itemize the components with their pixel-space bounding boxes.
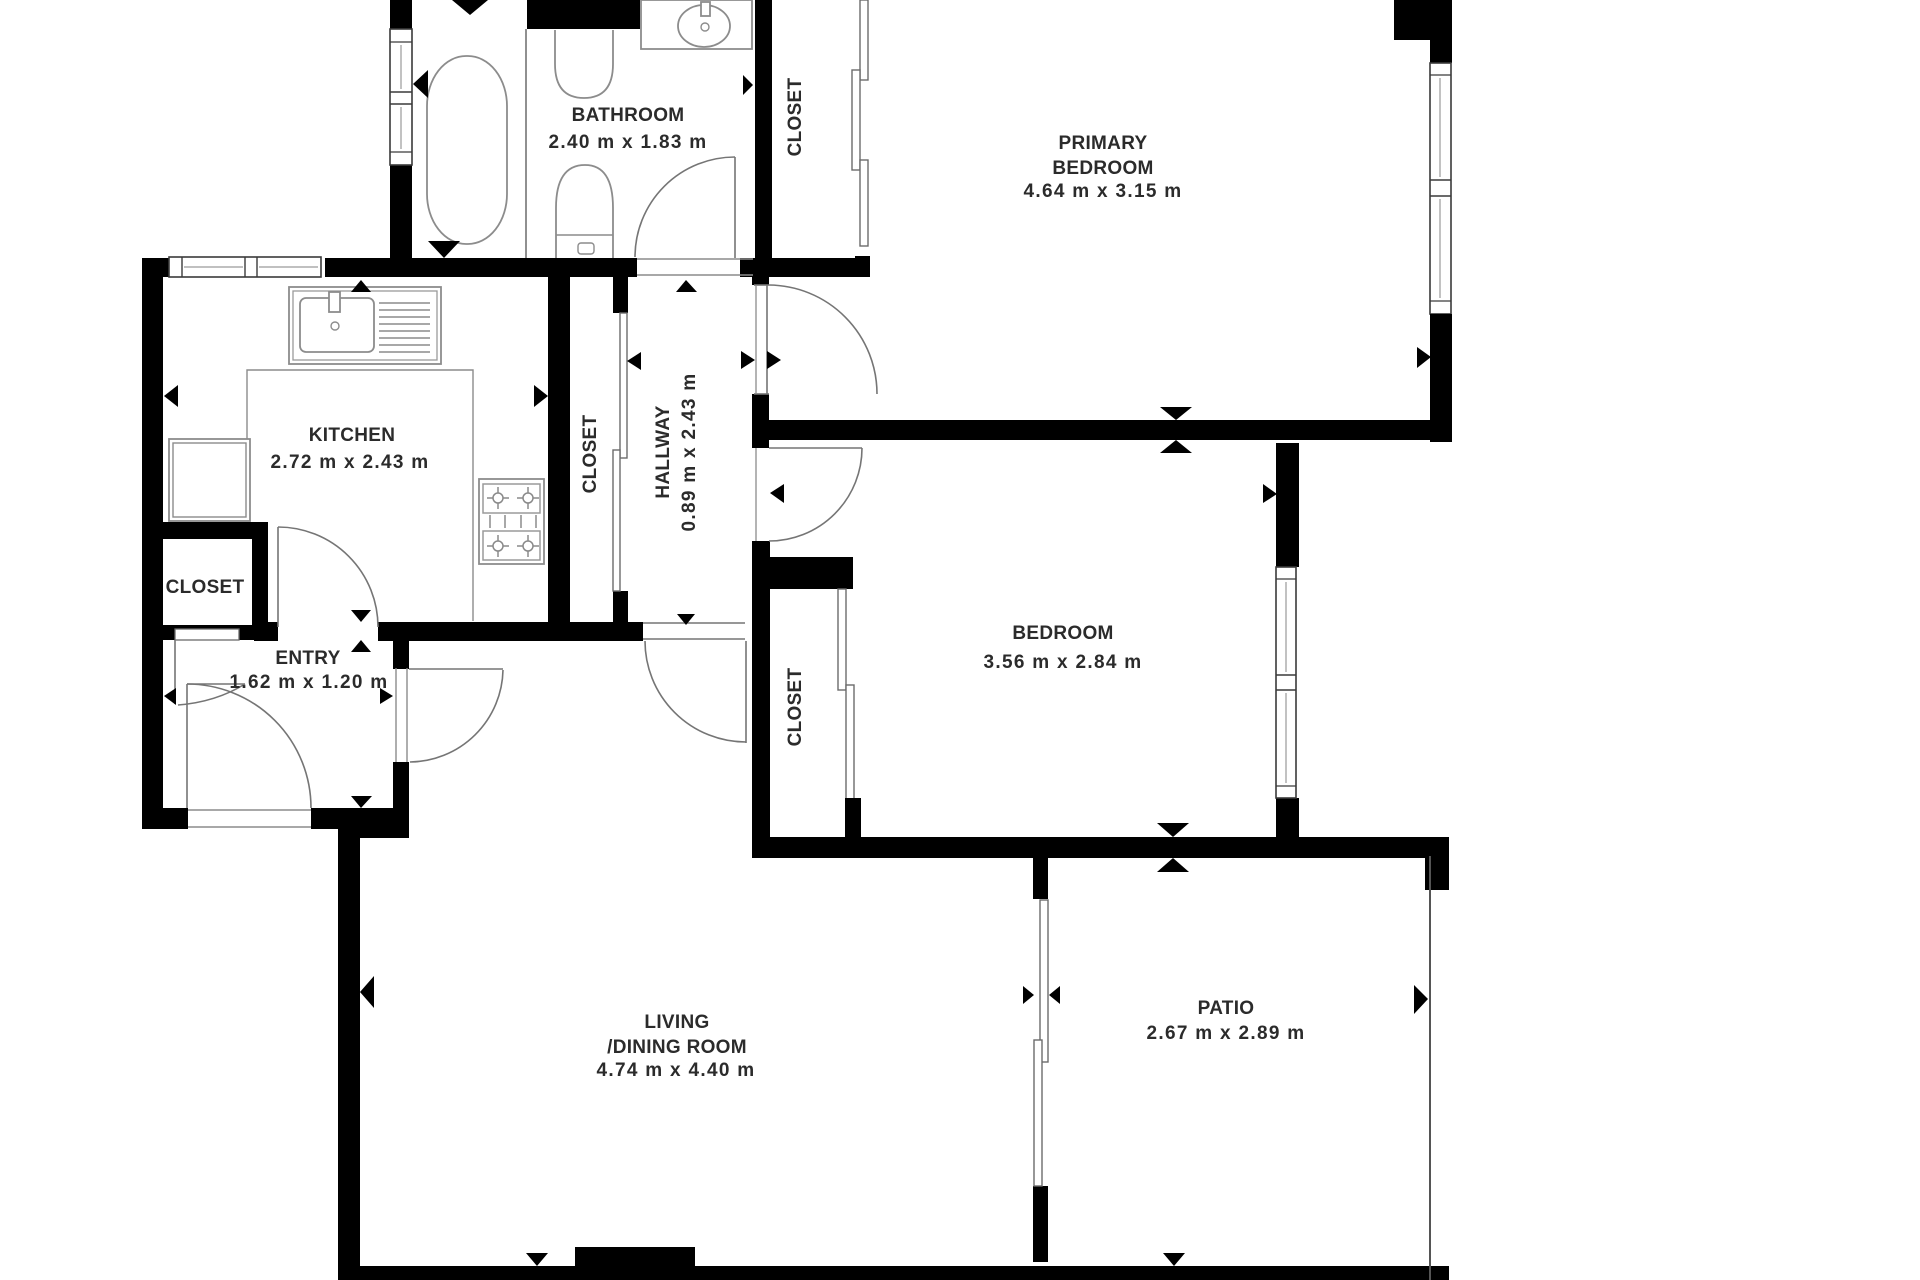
svg-text:0.89 m x 2.43 m: 0.89 m x 2.43 m [679, 373, 700, 532]
svg-text:PRIMARY: PRIMARY [1058, 133, 1147, 154]
svg-text:2.40 m x 1.83 m: 2.40 m x 1.83 m [549, 132, 708, 153]
svg-text:CLOSET: CLOSET [785, 667, 806, 746]
svg-text:LIVING: LIVING [644, 1012, 709, 1033]
svg-text:CLOSET: CLOSET [580, 414, 601, 493]
svg-text:ENTRY: ENTRY [275, 648, 340, 669]
svg-text:PATIO: PATIO [1198, 998, 1255, 1019]
svg-text:HALLWAY: HALLWAY [653, 405, 674, 498]
svg-text:BEDROOM: BEDROOM [1052, 158, 1153, 179]
svg-text:CLOSET: CLOSET [166, 577, 245, 598]
svg-text:CLOSET: CLOSET [785, 77, 806, 156]
svg-text:BEDROOM: BEDROOM [1012, 623, 1113, 644]
svg-text:KITCHEN: KITCHEN [309, 425, 396, 446]
svg-text:2.67 m x 2.89 m: 2.67 m x 2.89 m [1147, 1023, 1306, 1044]
svg-text:1.62 m x 1.20 m: 1.62 m x 1.20 m [230, 672, 389, 693]
svg-text:BATHROOM: BATHROOM [572, 105, 685, 126]
svg-text:3.56 m x 2.84 m: 3.56 m x 2.84 m [984, 652, 1143, 673]
svg-text:2.72 m x 2.43 m: 2.72 m x 2.43 m [271, 452, 430, 473]
svg-text:4.74 m x 4.40 m: 4.74 m x 4.40 m [597, 1060, 756, 1081]
svg-text:/DINING ROOM: /DINING ROOM [607, 1037, 747, 1058]
svg-text:4.64 m x 3.15 m: 4.64 m x 3.15 m [1024, 181, 1183, 202]
